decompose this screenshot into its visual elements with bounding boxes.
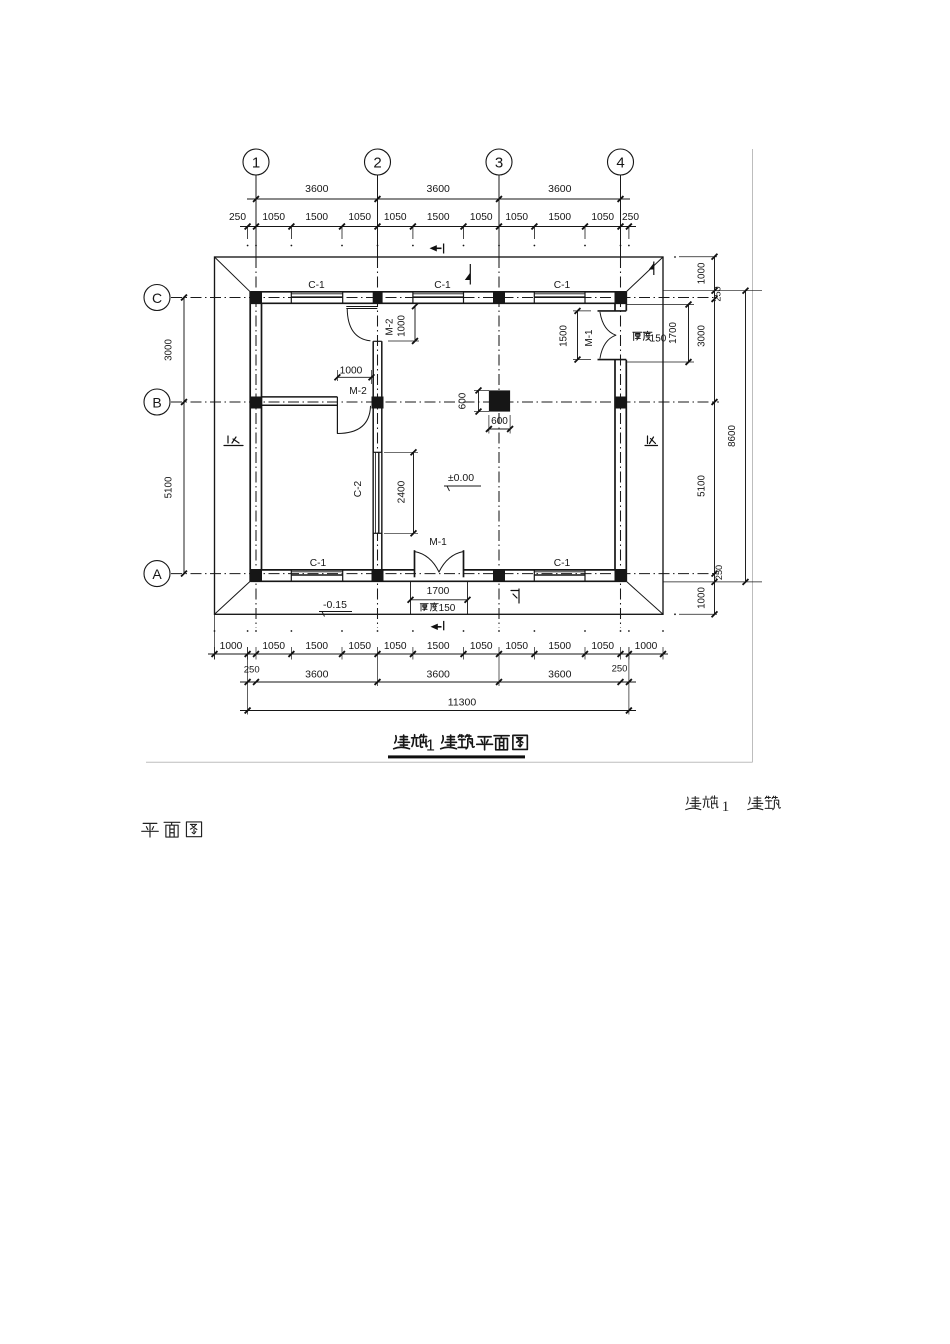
svg-text:3600: 3600 xyxy=(548,669,572,681)
svg-text:1500: 1500 xyxy=(427,212,450,223)
svg-text:1000: 1000 xyxy=(697,262,708,284)
svg-text:M-1: M-1 xyxy=(429,537,447,548)
svg-text:4: 4 xyxy=(616,155,624,172)
svg-text:C-1: C-1 xyxy=(554,280,571,291)
svg-text:1700: 1700 xyxy=(427,586,450,597)
svg-text:1000: 1000 xyxy=(220,641,243,652)
svg-text:5100: 5100 xyxy=(697,475,708,497)
svg-text:1500: 1500 xyxy=(548,212,571,223)
svg-text:1050: 1050 xyxy=(348,641,371,652)
svg-text:1000: 1000 xyxy=(340,366,363,377)
svg-text:250: 250 xyxy=(713,286,723,301)
svg-text:M-1: M-1 xyxy=(584,330,595,347)
svg-text:±0.00: ±0.00 xyxy=(448,472,474,484)
svg-text:1050: 1050 xyxy=(591,641,614,652)
svg-text:C-1: C-1 xyxy=(308,280,325,291)
svg-text:1050: 1050 xyxy=(348,212,371,223)
svg-text:600: 600 xyxy=(458,392,469,409)
svg-text:2: 2 xyxy=(373,155,381,172)
svg-text:3600: 3600 xyxy=(548,183,572,195)
svg-text:1000: 1000 xyxy=(635,641,658,652)
svg-text:M-2: M-2 xyxy=(349,386,367,397)
svg-text:250: 250 xyxy=(622,212,639,223)
svg-text:B: B xyxy=(152,395,161,411)
svg-text:1050: 1050 xyxy=(591,212,614,223)
svg-text:150: 150 xyxy=(439,603,456,614)
svg-text:8600: 8600 xyxy=(727,425,738,447)
svg-text:3600: 3600 xyxy=(305,183,329,195)
svg-text:1500: 1500 xyxy=(305,641,328,652)
svg-text:C-1: C-1 xyxy=(554,558,571,569)
svg-text:1: 1 xyxy=(426,738,435,755)
svg-text:C-1: C-1 xyxy=(434,280,451,291)
svg-text:1050: 1050 xyxy=(505,641,528,652)
svg-text:3000: 3000 xyxy=(164,339,175,361)
svg-text:3600: 3600 xyxy=(427,669,451,681)
svg-text:1050: 1050 xyxy=(470,212,493,223)
svg-text:3600: 3600 xyxy=(305,669,329,681)
svg-text:250: 250 xyxy=(229,212,246,223)
svg-text:1050: 1050 xyxy=(470,641,493,652)
svg-text:1000: 1000 xyxy=(697,587,708,609)
svg-text:3000: 3000 xyxy=(697,325,708,347)
svg-text:A: A xyxy=(152,566,162,582)
svg-text:1050: 1050 xyxy=(384,641,407,652)
svg-text:600: 600 xyxy=(491,416,508,427)
svg-text:1050: 1050 xyxy=(384,212,407,223)
svg-text:C-2: C-2 xyxy=(353,480,364,497)
svg-text:C-1: C-1 xyxy=(310,558,327,569)
svg-text:1500: 1500 xyxy=(559,325,570,347)
svg-text:250: 250 xyxy=(714,565,724,580)
svg-text:3: 3 xyxy=(495,155,503,172)
svg-text:3600: 3600 xyxy=(427,183,451,195)
svg-text:-0.15: -0.15 xyxy=(323,599,347,611)
svg-text:11300: 11300 xyxy=(448,697,477,709)
svg-text:1: 1 xyxy=(252,155,260,172)
svg-text:1500: 1500 xyxy=(427,641,450,652)
svg-text:250: 250 xyxy=(244,665,260,676)
svg-text:1000: 1000 xyxy=(397,315,408,337)
svg-text:150: 150 xyxy=(650,333,667,344)
svg-text:1700: 1700 xyxy=(668,322,679,344)
svg-text:1050: 1050 xyxy=(262,212,285,223)
svg-text:1050: 1050 xyxy=(262,641,285,652)
svg-text:C: C xyxy=(152,290,162,306)
svg-text:250: 250 xyxy=(612,664,628,675)
svg-text:1500: 1500 xyxy=(548,641,571,652)
svg-text:1050: 1050 xyxy=(505,212,528,223)
svg-text:1500: 1500 xyxy=(305,212,328,223)
svg-text:2400: 2400 xyxy=(397,480,408,503)
svg-text:M-2: M-2 xyxy=(385,319,396,336)
svg-text:1: 1 xyxy=(722,799,730,815)
svg-text:5100: 5100 xyxy=(164,476,175,498)
